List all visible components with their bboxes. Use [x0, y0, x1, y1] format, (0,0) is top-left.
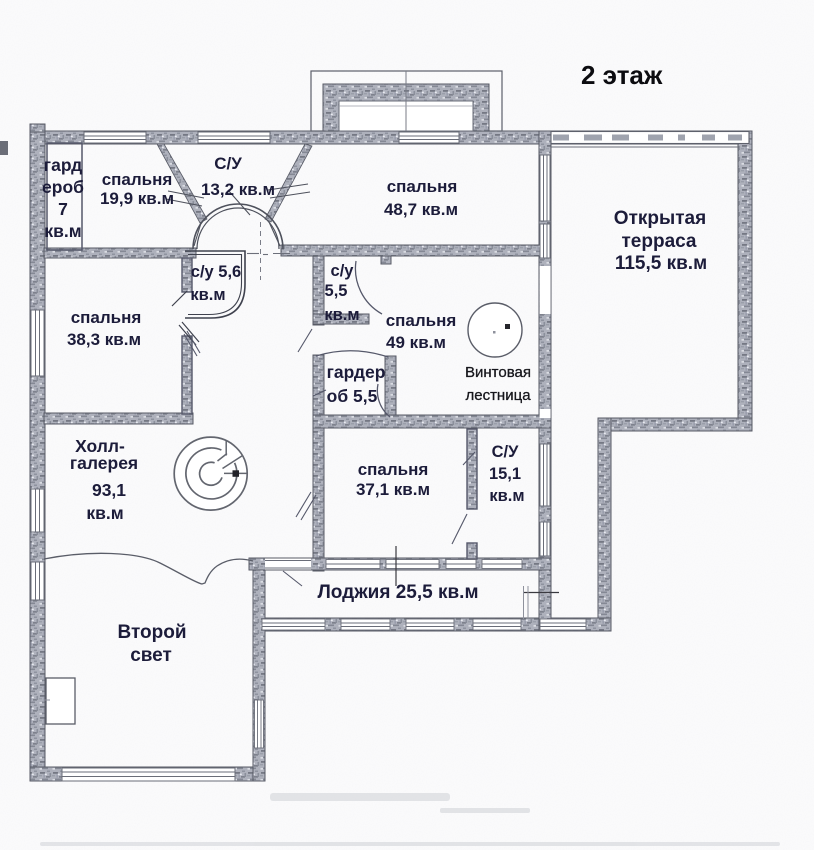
svg-text:115,5 кв.м: 115,5 кв.м [615, 253, 707, 274]
svg-text:Лоджия 25,5 кв.м: Лоджия 25,5 кв.м [317, 582, 478, 603]
svg-text:Винтовая: Винтовая [465, 364, 531, 381]
svg-text:лестница: лестница [465, 387, 531, 404]
svg-text:48,7 кв.м: 48,7 кв.м [384, 200, 458, 219]
svg-text:об 5,5: об 5,5 [327, 386, 378, 406]
svg-text:гардер: гардер [327, 362, 386, 382]
svg-text:С/У: С/У [492, 443, 520, 461]
svg-text:кв.м: кв.м [324, 306, 359, 324]
svg-text:15,1: 15,1 [489, 465, 521, 483]
svg-text:7: 7 [58, 199, 68, 219]
svg-text:5,5: 5,5 [325, 282, 348, 300]
svg-text:Второй: Второй [117, 622, 186, 643]
svg-text:Открытая: Открытая [614, 208, 706, 229]
svg-text:с/у: с/у [331, 262, 355, 280]
svg-text:38,3 кв.м: 38,3 кв.м [67, 330, 141, 349]
svg-text:галерея: галерея [70, 453, 138, 473]
svg-text:ероб: ероб [42, 177, 84, 197]
svg-text:кв.м: кв.м [190, 286, 225, 304]
svg-text:19,9 кв.м: 19,9 кв.м [100, 189, 174, 208]
svg-text:37,1 кв.м: 37,1 кв.м [356, 480, 430, 499]
svg-text:спальня: спальня [358, 460, 429, 479]
svg-text:спальня: спальня [102, 170, 173, 189]
svg-text:кв.м: кв.м [44, 221, 81, 241]
svg-text:2 этаж: 2 этаж [581, 60, 663, 90]
svg-text:13,2 кв.м: 13,2 кв.м [201, 180, 275, 199]
svg-text:49 кв.м: 49 кв.м [386, 333, 446, 352]
svg-text:спальня: спальня [71, 308, 142, 327]
svg-text:спальня: спальня [387, 177, 458, 196]
svg-text:93,1: 93,1 [92, 480, 126, 500]
svg-text:С/У: С/У [214, 154, 242, 173]
svg-text:кв.м: кв.м [489, 487, 524, 505]
svg-text:спальня: спальня [386, 311, 457, 330]
svg-text:свет: свет [130, 645, 172, 666]
svg-text:кв.м: кв.м [86, 503, 123, 523]
svg-text:гард: гард [44, 155, 82, 175]
svg-text:терраса: терраса [621, 231, 696, 252]
svg-text:с/у 5,6: с/у 5,6 [191, 263, 241, 281]
